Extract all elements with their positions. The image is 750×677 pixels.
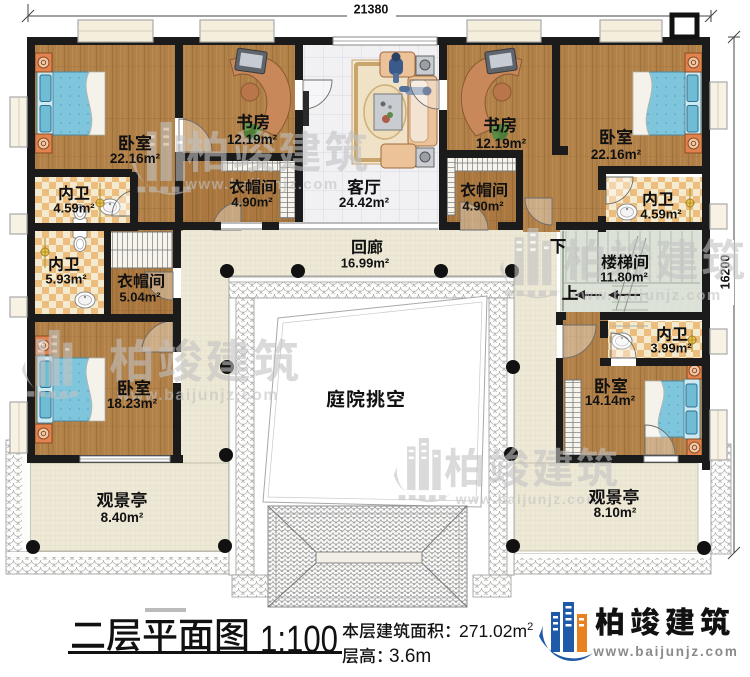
svg-text:8.40m²: 8.40m² xyxy=(101,510,144,525)
svg-text:14.14m²: 14.14m² xyxy=(585,393,636,408)
svg-text:22.16m²: 22.16m² xyxy=(591,147,642,162)
svg-text:3.99m²: 3.99m² xyxy=(650,341,692,356)
svg-text:8.10m²: 8.10m² xyxy=(594,505,637,520)
svg-text:271.02m2: 271.02m2 xyxy=(459,621,533,641)
svg-text:4.90m²: 4.90m² xyxy=(231,195,273,210)
svg-text:www.baijunjz.com: www.baijunjz.com xyxy=(592,644,738,659)
svg-text:12.19m²: 12.19m² xyxy=(227,132,278,147)
svg-text:www.baijunjz.com: www.baijunjz.com xyxy=(567,287,721,304)
svg-text:12.19m²: 12.19m² xyxy=(476,136,527,151)
svg-text:5.04m²: 5.04m² xyxy=(119,290,161,305)
svg-text:www.baijunjz.com: www.baijunjz.com xyxy=(184,176,338,193)
svg-text:4.59m²: 4.59m² xyxy=(640,207,682,222)
svg-text:1:100: 1:100 xyxy=(260,619,338,661)
svg-text:4.59m²: 4.59m² xyxy=(53,201,95,216)
svg-text:11.80m²: 11.80m² xyxy=(600,270,648,285)
svg-text:18.23m²: 18.23m² xyxy=(107,396,158,411)
svg-text:www.baijunjz.com: www.baijunjz.com xyxy=(455,491,601,507)
svg-text:4.90m²: 4.90m² xyxy=(462,199,504,214)
svg-text:22.16m²: 22.16m² xyxy=(110,151,161,166)
svg-text:21380: 21380 xyxy=(354,3,389,17)
svg-text:16.99m²: 16.99m² xyxy=(341,256,390,271)
svg-text:24.42m²: 24.42m² xyxy=(339,195,390,210)
svg-text:3.6m: 3.6m xyxy=(389,646,431,667)
svg-text:5.93m²: 5.93m² xyxy=(45,272,87,287)
